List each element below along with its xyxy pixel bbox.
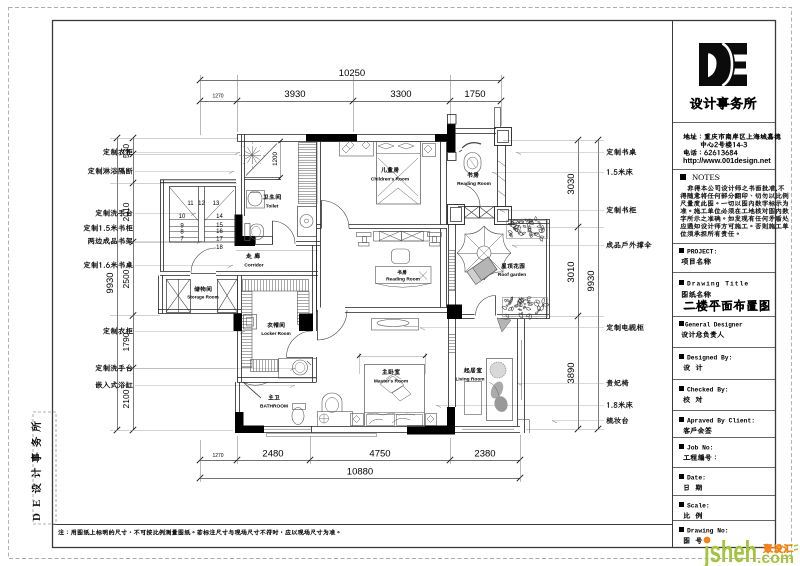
svg-text:Checked By:: Checked By: (687, 387, 729, 394)
svg-text:Corridor: Corridor (244, 263, 263, 269)
svg-text:3890: 3890 (566, 362, 577, 383)
svg-text:Children's Room: Children's Room (371, 177, 409, 183)
svg-text:3930: 3930 (284, 89, 305, 100)
svg-text:E: E (31, 500, 43, 507)
svg-text:BATHROOM: BATHROOM (260, 404, 288, 410)
svg-text:Designed By:: Designed By: (687, 355, 732, 362)
svg-text:10250: 10250 (339, 68, 365, 79)
svg-text:3300: 3300 (390, 89, 411, 100)
svg-text:3030: 3030 (566, 173, 577, 194)
svg-text:2500: 2500 (121, 269, 131, 288)
svg-text:Living Room: Living Room (455, 377, 484, 383)
svg-text:Scale:: Scale: (687, 503, 710, 510)
svg-text:Date:: Date: (687, 475, 706, 482)
svg-text:Reading Room: Reading Room (386, 277, 420, 283)
svg-text:18: 18 (216, 245, 223, 251)
svg-text:9930: 9930 (586, 270, 597, 291)
svg-text:8: 8 (180, 229, 184, 235)
svg-text:jsheh: jsheh (703, 534, 757, 566)
svg-text:General Designer: General Designer (685, 322, 743, 329)
svg-text:Job No:: Job No: (687, 445, 713, 452)
svg-text:NOTES: NOTES (692, 172, 720, 182)
svg-text:Locker Room: Locker Room (261, 331, 290, 336)
svg-text:12: 12 (198, 201, 205, 207)
svg-text:Apraved By Client:: Apraved By Client: (687, 418, 755, 425)
svg-text:1270: 1270 (212, 94, 223, 100)
svg-text:1750: 1750 (464, 89, 485, 100)
svg-text:16: 16 (216, 229, 223, 235)
svg-text:http://www.001design.net: http://www.001design.net (683, 156, 771, 165)
svg-text:Reading Room: Reading Room (457, 181, 491, 187)
svg-text:1270: 1270 (212, 453, 223, 459)
svg-text:10880: 10880 (347, 467, 373, 478)
svg-text:Master's Room: Master's Room (374, 379, 408, 385)
svg-text:2480: 2480 (262, 449, 283, 460)
svg-text:D: D (31, 513, 43, 521)
svg-text:3010: 3010 (566, 261, 577, 282)
svg-text:Storage Room: Storage Room (187, 295, 218, 300)
svg-text:Roof garden: Roof garden (498, 272, 526, 278)
svg-text:4750: 4750 (369, 449, 390, 460)
svg-text:14: 14 (216, 214, 223, 220)
svg-text:PROJECT:: PROJECT: (687, 249, 717, 256)
svg-text:Drawing Title: Drawing Title (687, 281, 749, 288)
svg-text:11: 11 (187, 201, 194, 207)
svg-text:10: 10 (179, 214, 186, 220)
svg-text:17: 17 (216, 237, 223, 243)
svg-text:Toilet: Toilet (266, 204, 279, 210)
svg-text:9930: 9930 (105, 272, 116, 293)
svg-text:13: 13 (213, 201, 220, 207)
svg-text:1790: 1790 (121, 332, 131, 351)
svg-text:2380: 2380 (474, 449, 495, 460)
svg-text:1200: 1200 (272, 152, 279, 166)
svg-text:2100: 2100 (121, 389, 131, 408)
